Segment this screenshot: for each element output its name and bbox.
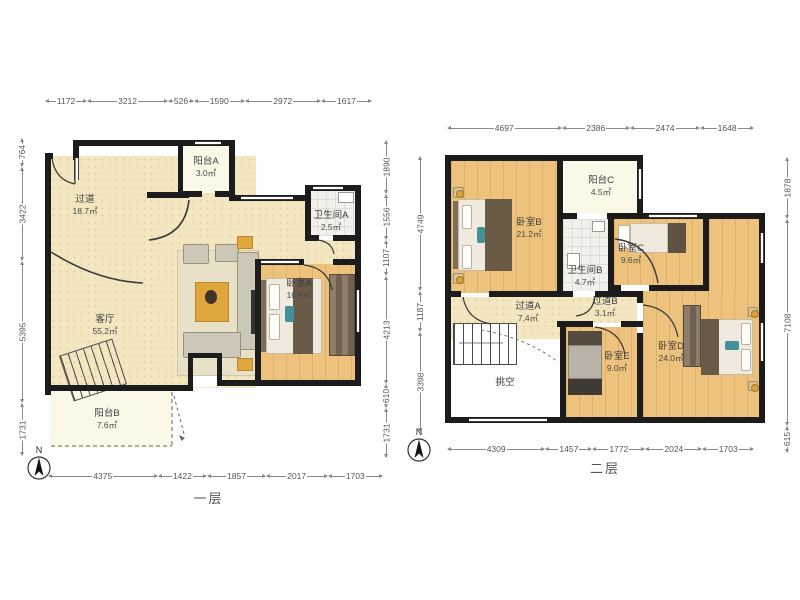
room-label-bed-b: 卧室B21.2㎡ <box>501 217 557 240</box>
floorplan-canvas: { "colors":{"wall":"#1c1c1c","floor_crea… <box>0 0 800 600</box>
floor2-title: 二层 <box>445 458 765 477</box>
wall <box>73 140 79 160</box>
wall <box>560 321 566 423</box>
north-label: N <box>36 446 43 455</box>
bed-b-pillow <box>462 205 472 229</box>
room-label-balcony-a: 阳台A3.0㎡ <box>183 156 229 179</box>
bed-d-pillow <box>741 349 751 371</box>
bed-b-pillow <box>462 245 472 269</box>
wall <box>637 333 643 423</box>
window <box>74 158 79 180</box>
wall <box>445 155 643 161</box>
floor1-dims-bottom: 43751422185720171703 <box>48 470 383 482</box>
floor1-living-floor-2 <box>228 198 308 240</box>
wall <box>355 185 361 386</box>
wall <box>255 259 261 386</box>
wall <box>217 353 222 386</box>
wall <box>45 385 193 391</box>
bed-c-blanket <box>668 223 686 253</box>
window <box>241 196 293 200</box>
north-compass: N <box>406 428 432 463</box>
bed-d-accent-pillow <box>725 341 739 350</box>
window <box>760 323 764 361</box>
wall <box>621 321 643 327</box>
room-label-hall-a: 过道A7.4㎡ <box>502 301 554 324</box>
floor2-dims-top: 4697238624741648 <box>447 122 754 134</box>
wall <box>45 153 51 395</box>
wall <box>445 291 461 297</box>
room-label-bath-b: 卫生间B4.7㎡ <box>557 265 613 288</box>
floor1-title: 一层 <box>45 488 372 507</box>
floor1-dims-right: 18901556110742136101731 <box>380 140 392 458</box>
compass-icon <box>26 455 52 481</box>
wall <box>489 291 563 297</box>
floor1-dims-left: 764342253951731 <box>16 138 28 456</box>
wall <box>147 192 189 198</box>
window <box>649 214 697 218</box>
room-label-bed-e: 卧室E9.0㎡ <box>593 351 641 374</box>
side-table <box>237 236 253 249</box>
bed-a-accent-pillow <box>285 306 294 322</box>
room-label-balcony-b: 阳台B7.6㎡ <box>77 408 137 431</box>
window <box>261 260 299 264</box>
room-label-bed-c: 卧室C9.6㎡ <box>607 243 655 266</box>
bed-a-wardrobe <box>329 274 355 356</box>
floor2-dims-left: 474911873398 <box>414 156 426 432</box>
plant <box>205 290 217 304</box>
wall <box>217 380 361 386</box>
room-label-bed-d: 卧室D24.0㎡ <box>645 341 697 364</box>
window <box>356 290 360 332</box>
bath-b-sink <box>592 221 605 232</box>
wall <box>637 291 643 303</box>
floor2-dims-bottom: 43091457177220241703 <box>447 443 754 455</box>
room-label-bed-a: 卧室A16.9㎡ <box>273 278 325 301</box>
bed-a-pillow <box>269 314 280 340</box>
wall <box>557 291 573 297</box>
room-label-hall-b: 过道B3.1㎡ <box>579 296 631 319</box>
armchair <box>215 244 239 262</box>
floor2-plan: 卧室B21.2㎡ 阳台C4.5㎡ 卫生间B4.7㎡ 卧室C9.6㎡ 过道A7.4… <box>445 155 765 423</box>
wall <box>649 285 709 291</box>
window <box>313 186 343 190</box>
bed-e-headboard <box>568 331 602 345</box>
nightstand <box>748 307 758 317</box>
wall <box>229 140 235 197</box>
room-label-bath-a: 卫生间A2.5㎡ <box>307 210 355 233</box>
nightstand <box>748 381 758 391</box>
stairs-floor2 <box>453 323 517 365</box>
side-table <box>237 358 253 371</box>
room-label-hallway: 过道18.7㎡ <box>55 194 115 217</box>
north-compass: N <box>26 446 52 481</box>
bed-d-pillow <box>741 323 751 345</box>
floor2-dims-right: 18787108615 <box>781 157 793 453</box>
floor1-dims-top: 11723212526159029721617 <box>45 95 372 107</box>
window <box>760 233 764 263</box>
window <box>195 141 221 145</box>
compass-icon <box>406 437 432 463</box>
floor1-plan: 过道18.7㎡ 阳台A3.0㎡ 卫生间A2.5㎡ 客厅55.2㎡ 卧室A16.9… <box>45 140 372 460</box>
room-label-living: 客厅55.2㎡ <box>75 314 135 337</box>
wall <box>305 235 319 241</box>
room-label-balcony-c: 阳台C4.5㎡ <box>575 175 627 198</box>
armchair <box>183 244 209 264</box>
bath-a-sink <box>338 192 354 203</box>
window <box>638 169 642 199</box>
wall <box>188 353 193 391</box>
room-label-void: 挑空 <box>479 377 531 389</box>
bed-b-accent-pillow <box>477 227 485 243</box>
window <box>469 418 547 422</box>
north-label: N <box>416 428 423 437</box>
nightstand <box>453 273 464 284</box>
wall <box>333 259 361 265</box>
wall <box>445 155 451 423</box>
bed-d-floor-strip <box>709 219 759 293</box>
wall <box>703 213 709 291</box>
nightstand <box>453 187 464 198</box>
bed-e-foot <box>568 379 602 395</box>
bed-d-blanket <box>701 319 719 375</box>
